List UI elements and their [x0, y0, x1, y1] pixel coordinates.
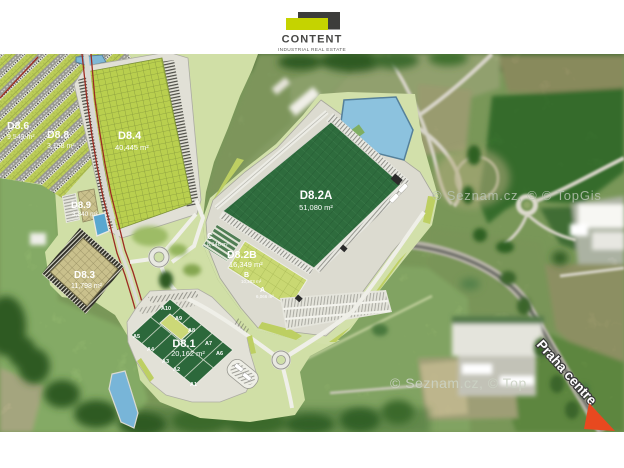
svg-text:B: B — [244, 272, 249, 279]
svg-text:A7: A7 — [205, 341, 212, 347]
svg-text:11,798 m²: 11,798 m² — [71, 283, 103, 290]
svg-text:D8.3: D8.3 — [74, 270, 96, 281]
svg-text:A: A — [260, 287, 265, 294]
svg-text:D8.6: D8.6 — [7, 120, 29, 132]
svg-text:6,066 m²: 6,066 m² — [256, 294, 274, 299]
svg-text:40,445 m²: 40,445 m² — [115, 143, 149, 152]
svg-text:A3: A3 — [162, 359, 169, 365]
svg-text:A5: A5 — [133, 334, 140, 340]
svg-text:CONTENT: CONTENT — [282, 34, 343, 46]
svg-text:51,080 m²: 51,080 m² — [299, 203, 333, 212]
svg-text:3,340 m²: 3,340 m² — [72, 211, 98, 218]
svg-text:A9: A9 — [175, 316, 182, 322]
svg-text:D8.2A: D8.2A — [300, 190, 333, 202]
svg-text:D8.8: D8.8 — [47, 129, 69, 141]
svg-text:20,162 m²: 20,162 m² — [171, 349, 205, 358]
svg-text:INDUSTRIAL REAL ESTATE: INDUSTRIAL REAL ESTATE — [278, 47, 346, 53]
svg-text:3,158 m²: 3,158 m² — [47, 143, 75, 150]
svg-text:16,349 m²: 16,349 m² — [229, 260, 263, 269]
svg-text:D8.4: D8.4 — [118, 130, 142, 142]
svg-text:A8: A8 — [188, 328, 195, 334]
svg-text:10,283 m²: 10,283 m² — [241, 279, 262, 284]
svg-text:9,549 m²: 9,549 m² — [7, 134, 35, 141]
svg-text:© Seznam.cz, © Top: © Seznam.cz, © Top — [390, 375, 527, 391]
svg-text:8,146 m²: 8,146 m² — [207, 242, 229, 248]
svg-text:D8.9: D8.9 — [71, 200, 91, 211]
svg-text:C: C — [207, 232, 213, 241]
svg-text:A1: A1 — [190, 382, 197, 388]
svg-text:A6: A6 — [216, 351, 223, 357]
svg-text:A10: A10 — [161, 306, 171, 312]
svg-text:A4: A4 — [147, 347, 155, 353]
svg-text:A2: A2 — [173, 367, 180, 373]
svg-text:© Seznam.cz, © © TopGis: © Seznam.cz, © © TopGis — [432, 188, 602, 203]
